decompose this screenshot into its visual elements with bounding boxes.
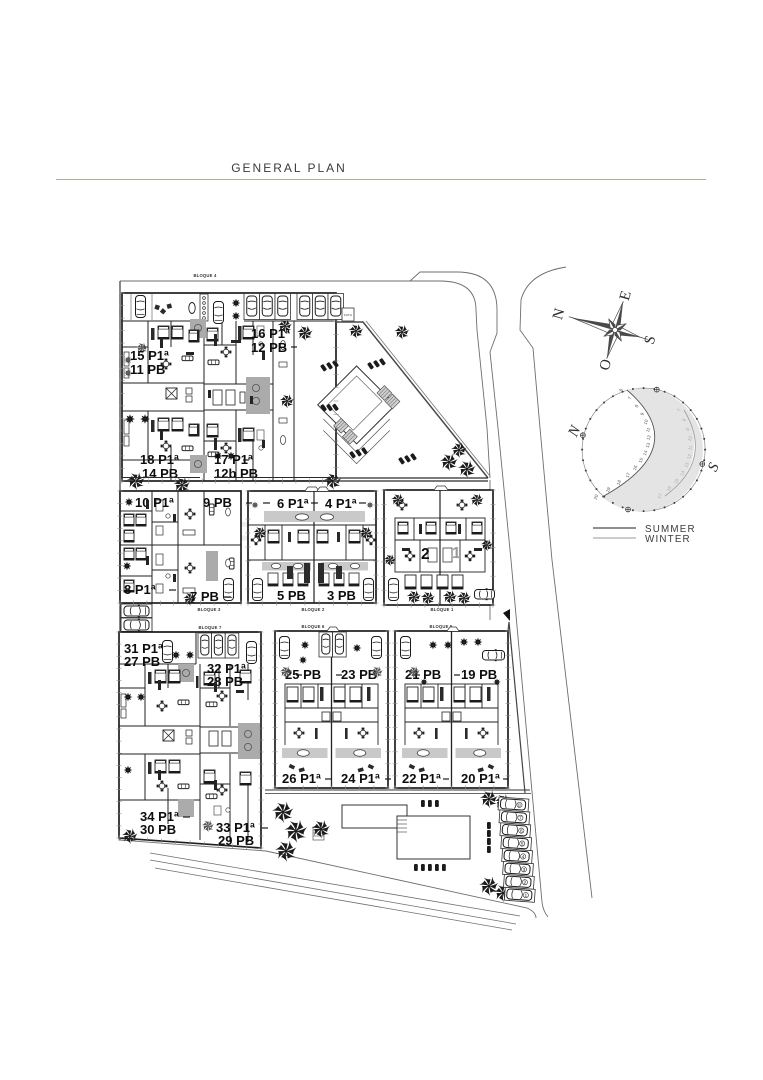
svg-text:BLOQUE 2: BLOQUE 2 — [301, 607, 324, 612]
svg-text:BLOQUE 3: BLOQUE 3 — [197, 607, 220, 612]
svg-text:BLOQUE 7: BLOQUE 7 — [198, 625, 221, 630]
svg-text:WINTER: WINTER — [645, 534, 691, 545]
svg-text:3 PB: 3 PB — [327, 588, 356, 603]
svg-text:11 PB: 11 PB — [130, 362, 165, 377]
svg-text:BLOQUE 6: BLOQUE 6 — [301, 624, 324, 629]
svg-text:12 PB: 12 PB — [251, 340, 287, 355]
svg-text:28 PB: 28 PB — [207, 674, 243, 689]
svg-text:5 PB: 5 PB — [277, 588, 306, 603]
svg-text:4 P1ª: 4 P1ª — [325, 496, 357, 511]
svg-text:12b PB: 12b PB — [214, 466, 258, 481]
svg-text:27 PB: 27 PB — [124, 654, 160, 669]
svg-text:20 P1ª: 20 P1ª — [461, 771, 500, 786]
svg-text:BLOQUE 1: BLOQUE 1 — [430, 607, 453, 612]
svg-text:1: 1 — [452, 545, 461, 562]
svg-text:19 PB: 19 PB — [461, 667, 497, 682]
svg-text:26 P1ª: 26 P1ª — [282, 771, 321, 786]
svg-text:29 PB: 29 PB — [218, 833, 254, 848]
svg-text:FUTU: FUTU — [344, 313, 352, 317]
svg-text:24 P1ª: 24 P1ª — [341, 771, 380, 786]
svg-text:30 PB: 30 PB — [140, 822, 176, 837]
svg-text:23 PB: 23 PB — [341, 667, 377, 682]
svg-text:18 P1ª: 18 P1ª — [140, 452, 179, 467]
svg-text:22 P1ª: 22 P1ª — [402, 771, 441, 786]
svg-text:16 P1ª: 16 P1ª — [251, 326, 290, 341]
svg-text:25 PB: 25 PB — [285, 667, 321, 682]
svg-text:GENERAL PLAN: GENERAL PLAN — [231, 161, 347, 175]
svg-text:10 P1ª: 10 P1ª — [135, 495, 174, 510]
svg-text:2: 2 — [421, 546, 430, 563]
svg-text:8 P1ª: 8 P1ª — [124, 582, 156, 597]
svg-text:BLOQUE 4: BLOQUE 4 — [193, 273, 216, 278]
svg-text:14 PB: 14 PB — [142, 466, 178, 481]
svg-text:9 PB: 9 PB — [203, 495, 232, 510]
svg-text:7 PB: 7 PB — [190, 589, 219, 604]
svg-text:6 P1ª: 6 P1ª — [277, 496, 309, 511]
svg-text:15 P1ª: 15 P1ª — [130, 348, 169, 363]
